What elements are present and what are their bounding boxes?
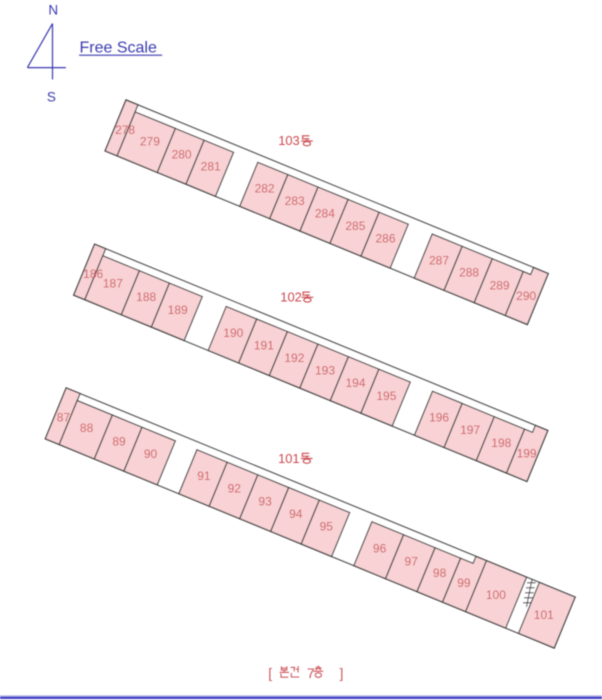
svg-text:288: 288 bbox=[459, 266, 479, 280]
svg-text:98: 98 bbox=[433, 566, 447, 580]
svg-text:89: 89 bbox=[112, 434, 126, 448]
svg-text:93: 93 bbox=[258, 494, 272, 508]
svg-text:278: 278 bbox=[115, 123, 135, 137]
svg-text:280: 280 bbox=[172, 148, 192, 162]
svg-text:189: 189 bbox=[168, 303, 188, 317]
svg-text:195: 195 bbox=[376, 389, 396, 403]
svg-text:187: 187 bbox=[103, 276, 123, 290]
svg-text:87: 87 bbox=[57, 410, 71, 424]
svg-text:190: 190 bbox=[223, 326, 243, 340]
svg-text:286: 286 bbox=[375, 231, 395, 245]
svg-text:101: 101 bbox=[278, 451, 300, 466]
svg-text:91: 91 bbox=[197, 469, 211, 483]
svg-text:188: 188 bbox=[136, 290, 156, 304]
svg-text:95: 95 bbox=[320, 520, 334, 534]
svg-text:186: 186 bbox=[83, 267, 103, 281]
svg-text:N: N bbox=[48, 3, 58, 18]
svg-text:191: 191 bbox=[254, 339, 274, 353]
svg-text:194: 194 bbox=[345, 376, 365, 390]
svg-text:289: 289 bbox=[490, 278, 510, 292]
svg-text:101: 101 bbox=[534, 608, 554, 622]
svg-text:287: 287 bbox=[429, 253, 449, 267]
svg-text:90: 90 bbox=[144, 447, 158, 461]
svg-text:88: 88 bbox=[80, 421, 94, 435]
svg-text:285: 285 bbox=[345, 219, 365, 233]
svg-text:]: ] bbox=[340, 665, 344, 681]
svg-text:99: 99 bbox=[457, 576, 471, 590]
svg-text:94: 94 bbox=[289, 507, 303, 521]
svg-text:97: 97 bbox=[405, 554, 419, 568]
svg-text:[: [ bbox=[268, 665, 272, 681]
svg-text:96: 96 bbox=[373, 541, 387, 555]
svg-text:196: 196 bbox=[429, 411, 449, 425]
svg-text:281: 281 bbox=[201, 160, 221, 174]
svg-text:284: 284 bbox=[315, 206, 335, 220]
svg-text:192: 192 bbox=[284, 351, 304, 365]
svg-text:290: 290 bbox=[516, 289, 536, 303]
svg-text:199: 199 bbox=[517, 447, 537, 461]
svg-text:283: 283 bbox=[285, 194, 305, 208]
svg-text:Free Scale: Free Scale bbox=[80, 40, 157, 57]
svg-text:7: 7 bbox=[307, 665, 315, 681]
svg-text:198: 198 bbox=[491, 436, 511, 450]
svg-text:92: 92 bbox=[228, 482, 242, 496]
svg-text:193: 193 bbox=[315, 364, 335, 378]
svg-text:100: 100 bbox=[486, 588, 506, 602]
svg-text:279: 279 bbox=[140, 135, 160, 149]
svg-text:103: 103 bbox=[278, 133, 300, 148]
svg-text:S: S bbox=[47, 90, 56, 105]
svg-text:197: 197 bbox=[460, 423, 480, 437]
svg-text:282: 282 bbox=[255, 182, 275, 196]
svg-text:102: 102 bbox=[280, 290, 302, 305]
